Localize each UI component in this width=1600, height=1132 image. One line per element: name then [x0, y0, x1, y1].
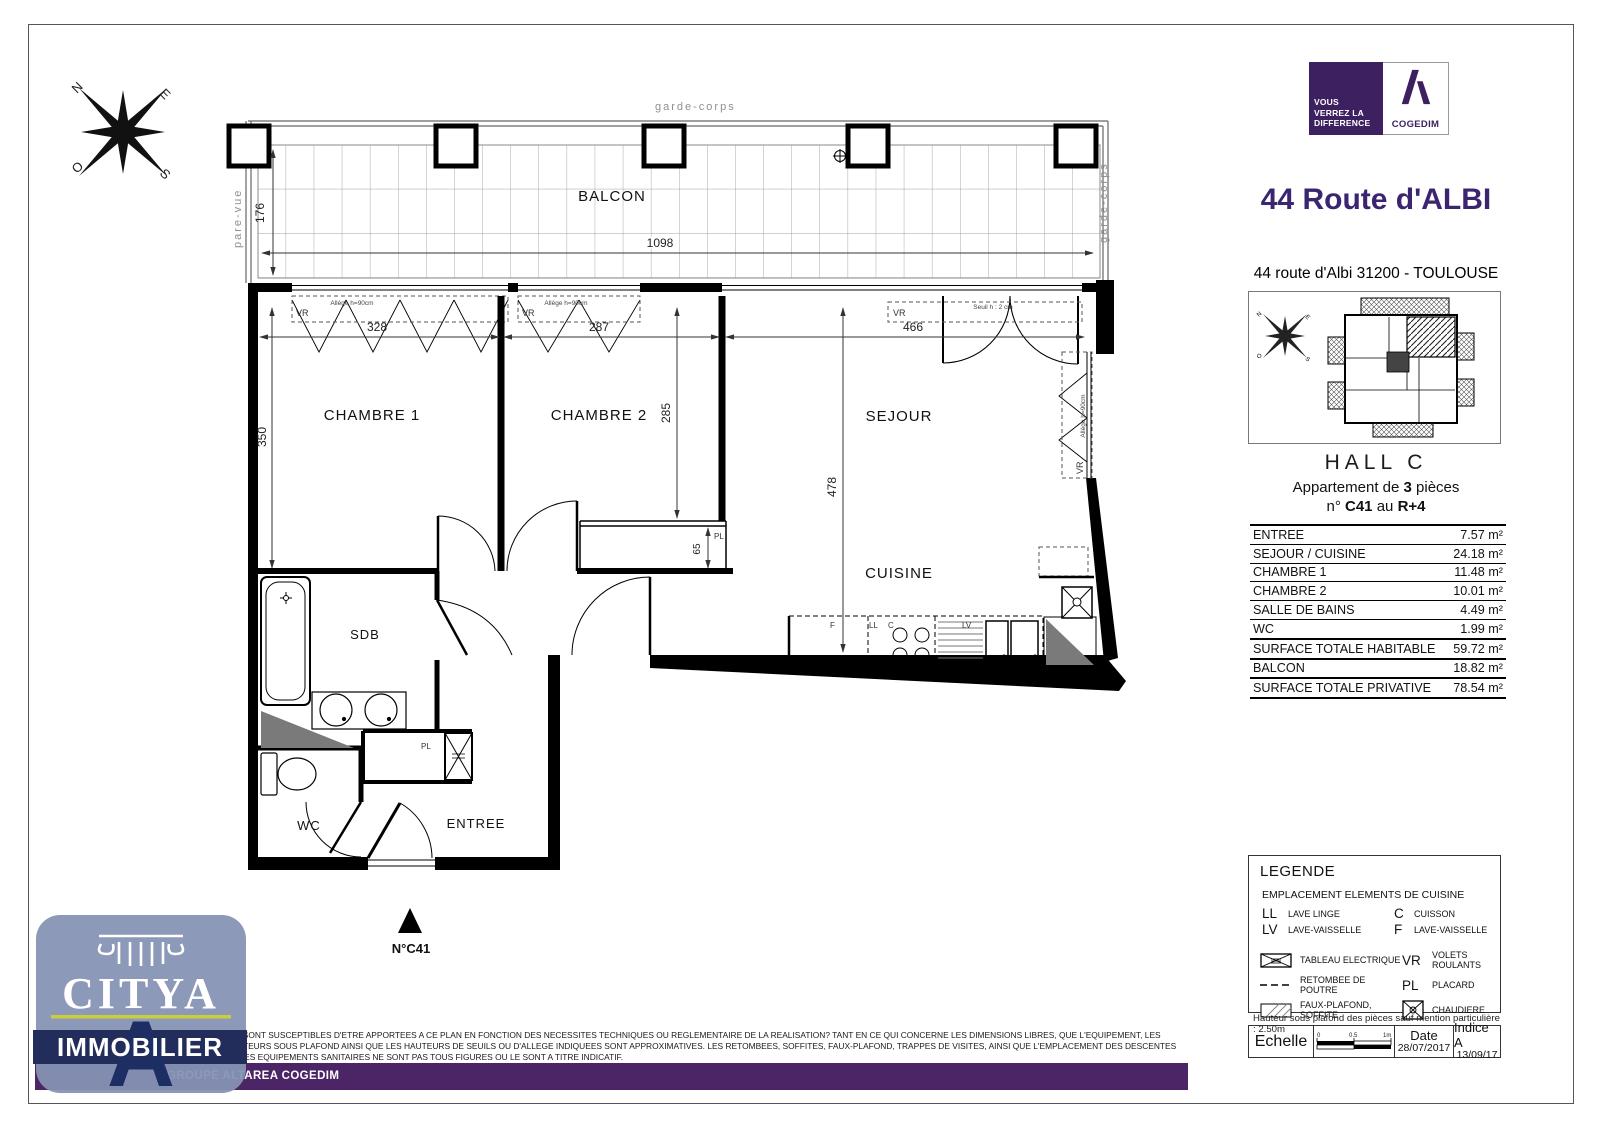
- doors: [306, 501, 650, 866]
- row-label: WC: [1253, 622, 1274, 636]
- row-value: 18.82 m²: [1453, 661, 1503, 675]
- date-value: 28/07/2017: [1398, 1043, 1451, 1055]
- unit-floor: R+4: [1398, 498, 1426, 515]
- citya-logo: CITYA A IMMOBILIER: [33, 912, 253, 1098]
- scale-date-block: Echelle 0 0.5 1m Date 28/07/2017 Indice …: [1248, 1025, 1501, 1058]
- room-label-wc: WC: [297, 818, 321, 833]
- apt-post: pièces: [1412, 479, 1460, 496]
- vr-label-ch1: VR: [296, 308, 309, 318]
- row-label: CHAMBRE 1: [1253, 565, 1326, 579]
- dimension-lines: [260, 308, 1084, 652]
- compass-e: E: [157, 86, 174, 103]
- unit-marker-label: N°C41: [392, 941, 430, 956]
- dim-328: 328: [367, 320, 387, 334]
- cogedim-tagline-block: VOUS VERREZ LA DIFFERENCE: [1309, 62, 1383, 135]
- soffit-wedge-kitchen: [1044, 617, 1096, 667]
- kitchen-lv-label: LV: [962, 621, 972, 630]
- row-label: BALCON: [1253, 661, 1305, 675]
- row-value: 10.01 m²: [1453, 584, 1503, 598]
- surface-table: ENTREE7.57 m² SEJOUR / CUISINE24.18 m² C…: [1250, 524, 1506, 699]
- key-plan-building: [1328, 298, 1474, 437]
- legend-vr-label: VOLETS ROULANTS: [1432, 950, 1500, 970]
- indice-cell: Indice A 13/09/17: [1453, 1026, 1500, 1057]
- row-value: 4.49 m²: [1460, 603, 1503, 617]
- date-label: Date: [1410, 1029, 1437, 1043]
- legend-tableau-label: TABLEAU ELECTRIQUE: [1300, 955, 1402, 965]
- kitchen-c-label: C: [888, 621, 894, 630]
- legend-c-abbr: C: [1394, 906, 1414, 921]
- apartment-type-line: Appartement de 3 pièces: [1244, 479, 1508, 496]
- row-label: SURFACE TOTALE HABITABLE: [1253, 642, 1435, 656]
- dim-285: 285: [659, 403, 673, 423]
- key-plan-unit-highlight: [1407, 317, 1455, 357]
- toilet: [261, 753, 316, 795]
- room-label-sejour: SEJOUR: [866, 408, 933, 425]
- legend-pl-abbr: PL: [1402, 978, 1432, 993]
- citya-immobilier-wordmark: IMMOBILIER: [57, 1032, 223, 1062]
- dim-287: 287: [589, 320, 609, 334]
- echelle-label: Echelle: [1255, 1033, 1307, 1051]
- row-value: 59.72 m²: [1453, 642, 1503, 656]
- svg-text:E: E: [1304, 314, 1311, 321]
- apt-rooms-count: 3: [1404, 479, 1412, 496]
- dim-478: 478: [825, 477, 839, 497]
- date-cell: Date 28/07/2017: [1394, 1026, 1453, 1057]
- balcony: garde-corps garde-corps pare-vue BALCON …: [229, 101, 1110, 283]
- cogedim-wordmark: COGEDIM: [1383, 119, 1448, 130]
- electrical-panel-symbol: [1260, 953, 1292, 968]
- svg-text:0: 0: [1317, 1033, 1321, 1039]
- table-row: BALCON18.82 m²: [1250, 658, 1506, 678]
- row-label: SURFACE TOTALE PRIVATIVE: [1253, 681, 1431, 695]
- legend-title: LEGENDE: [1260, 863, 1500, 880]
- electrical-panel-icon: [445, 733, 472, 780]
- unit-entrance-marker: N°C41: [392, 908, 430, 956]
- windows: [292, 286, 1091, 479]
- kitchen-dashed-cabinet: [1039, 547, 1094, 577]
- dim-176: 176: [253, 203, 267, 223]
- indice-value: 13/09/17: [1457, 1050, 1498, 1062]
- unit-number-line: n° C41 au R+4: [1244, 498, 1508, 515]
- room-label-chambre2: CHAMBRE 2: [551, 407, 648, 424]
- table-row: CHAMBRE 210.01 m²: [1250, 581, 1506, 600]
- allege-note-ch1: Allège h=90cm: [330, 300, 373, 307]
- legend-lv-label: LAVE-VAISSELLE: [1288, 925, 1394, 935]
- cogedim-lambda-icon: [1397, 65, 1435, 109]
- dim-466: 466: [903, 320, 923, 334]
- row-value: 78.54 m²: [1453, 681, 1503, 695]
- allege-note-right: Allège h=90cm: [1080, 394, 1087, 437]
- dim-350: 350: [255, 427, 269, 447]
- legend-retombee-label: RETOMBEE DE POUTRE: [1300, 975, 1402, 995]
- svg-text:S: S: [1304, 356, 1311, 363]
- vr-label-sejour: VR: [893, 308, 906, 318]
- legend-pl-label: PLACARD: [1432, 980, 1500, 990]
- table-row: SALLE DE BAINS4.49 m²: [1250, 600, 1506, 619]
- cogedim-tagline-line2: VERREZ LA: [1314, 108, 1370, 119]
- legend-ll-label: LAVE LINGE: [1288, 909, 1394, 919]
- unit-number: C41: [1345, 498, 1373, 515]
- key-plan-compass-icon: N E O S: [1256, 311, 1310, 363]
- balcony-label: BALCON: [578, 188, 646, 205]
- apt-pre: Appartement de: [1293, 479, 1404, 496]
- table-row: CHAMBRE 111.48 m²: [1250, 563, 1506, 582]
- room-label-sdb: SDB: [350, 627, 380, 642]
- page-title: 44 Route d'ALBI: [1244, 183, 1508, 217]
- row-label: ENTREE: [1253, 528, 1304, 542]
- dim-65: 65: [692, 543, 703, 555]
- scale-bar-cell: 0 0.5 1m: [1313, 1026, 1394, 1057]
- bathtub: [261, 577, 310, 705]
- row-value: 1.99 m²: [1460, 622, 1503, 636]
- legend-subtitle: EMPLACEMENT ELEMENTS DE CUISINE: [1262, 889, 1500, 901]
- address-line: 44 route d'Albi 31200 - TOULOUSE: [1244, 265, 1508, 283]
- room-label-entree: ENTREE: [447, 816, 506, 831]
- beam-symbol: [1260, 982, 1292, 988]
- garde-corps-label-right: garde-corps: [1098, 162, 1110, 243]
- dim-1098: 1098: [647, 236, 674, 250]
- legend-f-abbr: F: [1394, 922, 1414, 937]
- pl-label-entree: PL: [421, 742, 431, 751]
- scale-label-cell: Echelle: [1249, 1026, 1313, 1057]
- table-row: WC1.99 m²: [1250, 619, 1506, 638]
- seuil-note: Seuil h : 2 cm: [973, 304, 1012, 311]
- indice-label: Indice A: [1454, 1021, 1500, 1050]
- kitchen-f-label: F: [830, 621, 835, 630]
- room-label-cuisine: CUISINE: [865, 565, 933, 582]
- compass-n: N: [69, 79, 86, 96]
- key-plan-box: N E O S: [1248, 291, 1501, 444]
- pl-label-chambre2: PL: [714, 532, 724, 541]
- no-mid: au: [1373, 498, 1398, 515]
- table-row-total-privative: SURFACE TOTALE PRIVATIVE78.54 m²: [1250, 677, 1506, 697]
- legend-f-label: LAVE-VAISSELLE: [1414, 925, 1500, 935]
- scale-bar: 0 0.5 1m: [1315, 1030, 1393, 1054]
- garde-corps-label-top: garde-corps: [655, 101, 736, 113]
- svg-text:N: N: [1256, 311, 1263, 318]
- cogedim-tagline-line3: DIFFERENCE: [1314, 118, 1370, 129]
- no-pre: n°: [1326, 498, 1345, 515]
- vr-label-right-window: VR: [1075, 461, 1085, 474]
- table-row: SEJOUR / CUISINE24.18 m²: [1250, 544, 1506, 563]
- hall-heading: HALL C: [1244, 451, 1508, 475]
- vr-label-ch2: VR: [522, 308, 535, 318]
- cogedim-tagline-line1: VOUS: [1314, 97, 1370, 108]
- legend-c-label: CUISSON: [1414, 909, 1500, 919]
- row-label: SEJOUR / CUISINE: [1253, 547, 1366, 561]
- row-value: 24.18 m²: [1453, 547, 1503, 561]
- svg-text:0.5: 0.5: [1349, 1033, 1358, 1039]
- cogedim-logo: VOUS VERREZ LA DIFFERENCE COGEDIM: [1309, 62, 1449, 135]
- compass-icon: N E O S: [69, 79, 174, 183]
- legend-box: LEGENDE EMPLACEMENT ELEMENTS DE CUISINE …: [1248, 855, 1501, 1013]
- floor-plan-page: N E O S garde-corps garde-corps pare-vue: [0, 0, 1600, 1132]
- compass-o: O: [69, 158, 87, 176]
- row-label: SALLE DE BAINS: [1253, 603, 1355, 617]
- row-value: 7.57 m²: [1460, 528, 1503, 542]
- cogedim-mark-block: COGEDIM: [1383, 62, 1449, 135]
- kitchen-ll-label: LL: [869, 621, 878, 630]
- allege-note-ch2: Allège h=90cm: [544, 300, 587, 307]
- legend-vr-abbr: VR: [1402, 953, 1432, 968]
- svg-text:1m: 1m: [1383, 1033, 1391, 1039]
- table-row: ENTREE7.57 m²: [1250, 524, 1506, 544]
- legend-lv-abbr: LV: [1262, 922, 1288, 937]
- pare-vue-label: pare-vue: [232, 189, 244, 248]
- room-label-chambre1: CHAMBRE 1: [324, 407, 421, 424]
- bathroom-sinks: [312, 692, 406, 729]
- row-label: CHAMBRE 2: [1253, 584, 1326, 598]
- row-value: 11.48 m²: [1454, 565, 1503, 579]
- legend-ll-abbr: LL: [1262, 906, 1288, 921]
- svg-text:O: O: [1256, 353, 1264, 361]
- table-row-total-habitable: SURFACE TOTALE HABITABLE59.72 m²: [1250, 638, 1506, 658]
- boiler-icon: [1062, 587, 1092, 618]
- disclaimer-text: DES MODIFICATIONS SONT SUSCEPTIBLES D'ET…: [155, 1030, 1193, 1063]
